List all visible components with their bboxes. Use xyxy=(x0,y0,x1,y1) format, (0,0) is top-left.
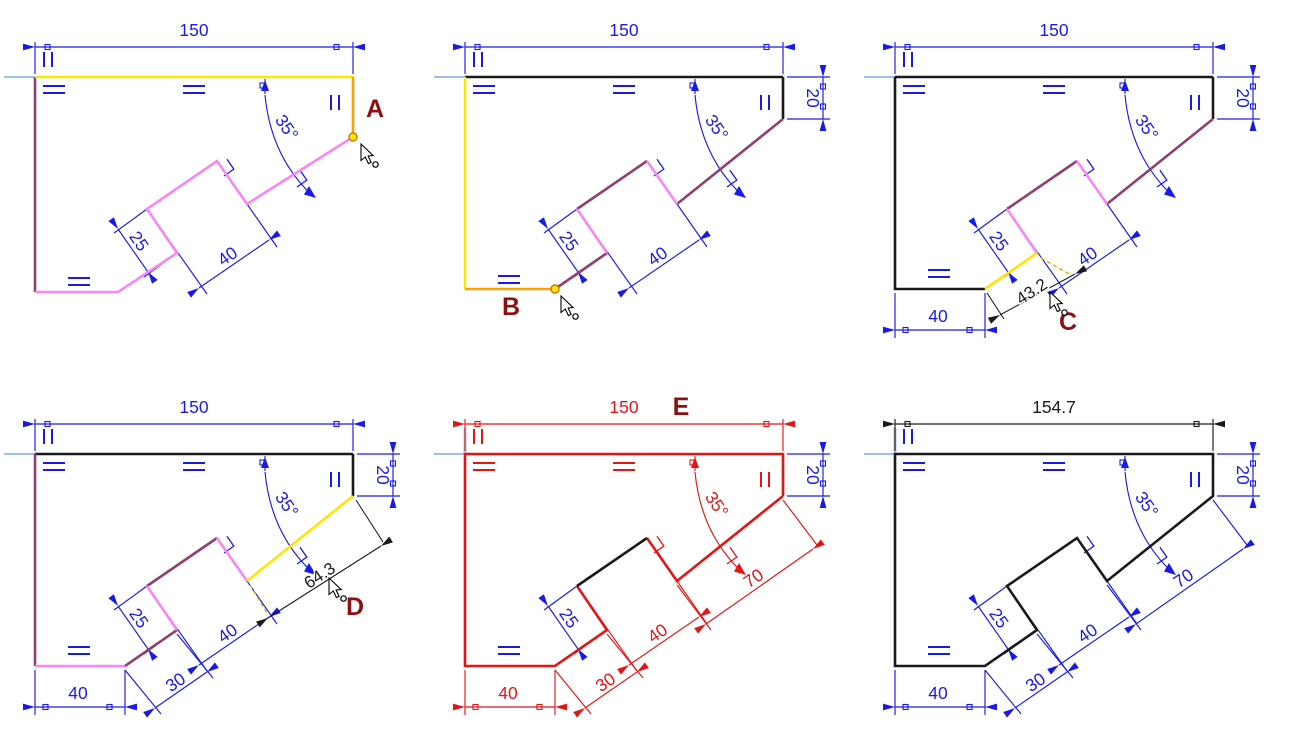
dim-text-top[interactable]: 150 xyxy=(179,20,208,40)
parallel-relation-icon xyxy=(761,472,769,487)
dim-text-25[interactable]: 25 xyxy=(985,604,1013,631)
cursor-icon xyxy=(561,296,578,319)
dim-text-bottom-40[interactable]: 40 xyxy=(68,683,88,703)
panel-b-canvas: 150 20 35° 25 40 xyxy=(430,0,860,377)
dim-text-top[interactable]: 150 xyxy=(179,397,208,417)
equal-relation-icon xyxy=(183,463,205,470)
equal-relation-icon xyxy=(43,86,65,93)
parallel-relation-icon xyxy=(331,95,339,110)
dim-text-30[interactable]: 30 xyxy=(162,668,190,696)
dimension-top-150[interactable] xyxy=(35,419,353,451)
dim-text-angle[interactable]: 35° xyxy=(701,488,733,521)
dim-text-top[interactable]: 150 xyxy=(609,397,638,417)
dim-text-20[interactable]: 20 xyxy=(803,465,823,485)
parallel-relation-icon xyxy=(761,95,769,110)
dim-text-40[interactable]: 40 xyxy=(1074,619,1102,647)
dim-text-30[interactable]: 30 xyxy=(592,668,620,696)
sketch-segment-lower-zigzag[interactable] xyxy=(35,137,353,292)
dim-text-40[interactable]: 40 xyxy=(214,242,242,270)
sketch-segment-diagonals[interactable] xyxy=(35,454,217,666)
dim-text-angle[interactable]: 35° xyxy=(271,488,303,521)
equal-relation-icon xyxy=(498,276,520,283)
sketch-segment-diagonals[interactable] xyxy=(555,119,783,289)
panel-e-canvas: 150 E 20 35° 25 40 30 xyxy=(430,377,860,753)
equal-relation-icon xyxy=(613,463,635,470)
equal-relation-icon xyxy=(903,86,925,93)
sketch-segment-black-outline[interactable] xyxy=(895,77,1213,289)
equal-relation-icon xyxy=(1043,86,1065,93)
equal-relation-icon xyxy=(613,86,635,93)
equal-relation-icon xyxy=(68,278,90,285)
endpoint-marker[interactable] xyxy=(349,133,357,141)
equal-relation-icon xyxy=(473,86,495,93)
dimension-notch-40[interactable] xyxy=(147,538,277,671)
dimension-notch-40[interactable] xyxy=(577,538,707,671)
parallel-relation-icon xyxy=(474,52,482,67)
dim-text-top[interactable]: 150 xyxy=(609,20,638,40)
dimension-top-150[interactable] xyxy=(465,419,783,451)
equal-relation-icon xyxy=(183,86,205,93)
dim-text-40[interactable]: 40 xyxy=(1074,242,1102,270)
sketch-segment-notch-sides[interactable] xyxy=(35,538,247,666)
equal-relation-icon xyxy=(1043,463,1065,470)
dashed-extension-line xyxy=(1041,258,1071,275)
dim-text-40[interactable]: 40 xyxy=(214,619,242,647)
dim-text-angle[interactable]: 35° xyxy=(1131,111,1163,144)
cursor-icon xyxy=(361,144,378,167)
dim-text-25[interactable]: 25 xyxy=(125,604,153,631)
sketch-segment-diagonals[interactable] xyxy=(1007,119,1213,209)
step-label: D xyxy=(346,593,364,621)
dim-text-20[interactable]: 20 xyxy=(1233,88,1253,108)
tutorial-board: 150 35° 25 40 xyxy=(0,0,1290,753)
dim-text-top[interactable]: 150 xyxy=(1039,20,1068,40)
dim-text-20[interactable]: 20 xyxy=(373,465,393,485)
dim-text-25[interactable]: 25 xyxy=(985,227,1013,254)
step-label: E xyxy=(673,393,690,421)
parallel-relation-icon xyxy=(1191,472,1199,487)
dimension-notch-40[interactable] xyxy=(577,161,707,294)
sketch-profile-final[interactable] xyxy=(895,454,1213,666)
dim-text-bottom-40[interactable]: 40 xyxy=(928,683,948,703)
equal-relation-icon xyxy=(498,647,520,654)
step-label: B xyxy=(502,293,520,321)
dim-text-pending[interactable]: 43.2 xyxy=(1013,275,1051,309)
dim-text-angle[interactable]: 35° xyxy=(701,111,733,144)
dim-text-70[interactable]: 70 xyxy=(740,564,768,592)
dimension-notch-40[interactable] xyxy=(147,161,277,294)
parallel-relation-icon xyxy=(904,429,912,444)
panel-c-canvas: 150 20 35° 25 40 40 xyxy=(860,0,1290,377)
sketch-profile-highlighted[interactable] xyxy=(465,454,783,666)
dim-text-20[interactable]: 20 xyxy=(803,88,823,108)
dimension-notch-40[interactable] xyxy=(1007,161,1137,294)
panel-final-canvas: 154.7 20 35° 25 40 30 xyxy=(860,377,1290,753)
dim-text-20[interactable]: 20 xyxy=(1233,465,1253,485)
parallel-relation-icon xyxy=(474,429,482,444)
equal-relation-icon xyxy=(928,647,950,654)
parallel-relation-icon xyxy=(44,52,52,67)
dimension-top-154-7[interactable] xyxy=(895,419,1213,451)
dim-text-angle[interactable]: 35° xyxy=(271,111,303,144)
cursor-icon xyxy=(329,578,346,601)
dim-text-40[interactable]: 40 xyxy=(644,619,672,647)
dim-text-25[interactable]: 25 xyxy=(555,604,583,631)
endpoint-marker[interactable] xyxy=(551,285,559,293)
parallel-relation-icon xyxy=(904,52,912,67)
dim-text-bottom-40[interactable]: 40 xyxy=(928,306,948,326)
equal-relation-icon xyxy=(903,463,925,470)
equal-relation-icon xyxy=(473,463,495,470)
dim-text-angle[interactable]: 35° xyxy=(1131,488,1163,521)
panel-d-canvas: 150 20 35° 25 40 30 xyxy=(0,377,430,753)
step-label: A xyxy=(366,95,384,123)
sketch-segment-top-right[interactable] xyxy=(465,77,783,119)
panel-a-canvas: 150 35° 25 40 xyxy=(0,0,430,377)
dimension-top-150[interactable] xyxy=(465,42,783,74)
dim-text-30[interactable]: 30 xyxy=(1022,668,1050,696)
parallel-relation-icon xyxy=(44,429,52,444)
equal-relation-icon xyxy=(43,463,65,470)
dim-text-25[interactable]: 25 xyxy=(555,227,583,254)
parallel-relation-icon xyxy=(1191,95,1199,110)
sketch-segment-top-right[interactable] xyxy=(35,454,353,496)
dim-text-bottom-40[interactable]: 40 xyxy=(498,683,518,703)
dim-text-40[interactable]: 40 xyxy=(644,242,672,270)
dim-text-70[interactable]: 70 xyxy=(1170,564,1198,592)
parallel-relation-icon xyxy=(331,472,339,487)
dimension-top-150[interactable] xyxy=(35,42,353,74)
dim-text-25[interactable]: 25 xyxy=(125,227,153,254)
equal-relation-icon xyxy=(928,270,950,277)
equal-relation-icon xyxy=(68,647,90,654)
dimension-top-150[interactable] xyxy=(895,42,1213,74)
sketch-segment-notch-top[interactable] xyxy=(577,538,647,586)
dimension-notch-40[interactable] xyxy=(1007,538,1137,671)
dim-text-top[interactable]: 154.7 xyxy=(1032,397,1076,417)
